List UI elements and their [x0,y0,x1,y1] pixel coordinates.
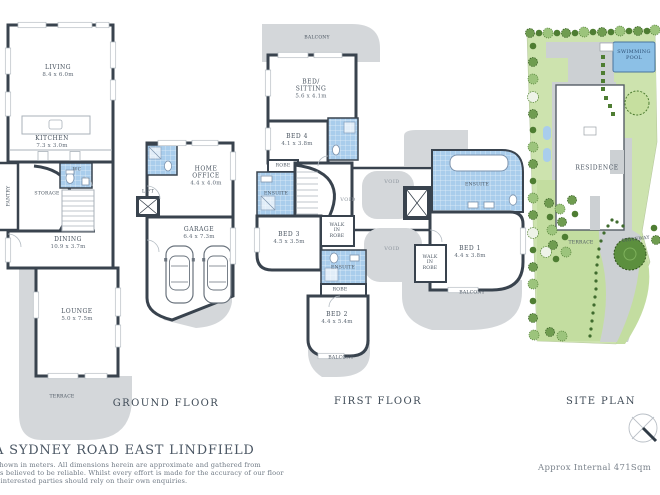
room-label-bed1: BED 1 4.4 x 3.8m [454,245,485,259]
void-label-2: VOID [384,180,400,186]
room-label-bed4: BED 4 4.1 x 3.8m [281,133,312,147]
area-label-residence: RESIDENCE [575,164,618,171]
room-label-walk-in-robe2: WALK IN ROBE [421,255,439,271]
room-label-ensuite3: ENSUITE [264,191,288,196]
room-label-lounge: LOUNGE 5.0 x 7.5m [61,308,92,322]
first-floor-drawing [254,24,525,377]
room-label-lift: LIFT [142,189,154,194]
room-label-bed-sitting: BED/ SITTING 5.6 x 4.1m [294,78,328,99]
floorplan-graphics [0,0,660,495]
property-address: A SYDNEY ROAD EAST LINDFIELD [0,443,255,458]
room-label-kitchen: KITCHEN 7.3 x 3.0m [35,135,69,149]
disclaimer-line-1: shown in meters. All dimensions herein a… [0,461,261,469]
disclaimer-line-2: es believed to be reliable. Whilst every… [0,469,284,477]
compass-icon [629,414,657,442]
room-label-ensuite1: ENSUITE [465,182,489,187]
room-label-ensuite2: ENSUITE [331,265,355,270]
ground-floor-title: GROUND FLOOR [113,398,219,409]
room-label-robe2: ROBE [333,287,348,292]
room-label-storage: STORAGE [34,191,59,196]
disclaimer-line-3: , interested parties should rely on thei… [0,477,187,485]
room-label-terrace-ground: TERRACE [50,394,75,399]
room-label-pantry: PANTRY [6,186,11,207]
room-label-balcony-top: BALCONY [304,35,329,40]
room-label-walk-in-robe1: WALK IN ROBE [328,223,346,239]
area-label-terrace-site: TERRACE [569,240,594,245]
room-label-home-office: HOME OFFICE 4.4 x 4.0m [185,165,227,186]
site-plan-drawing [526,25,660,344]
floorplan-page: LIVING 8.4 x 6.0m KITCHEN 7.3 x 3.0m PAN… [0,0,660,495]
room-label-bed2: BED 2 4.4 x 5.4m [321,311,352,325]
room-label-bed3: BED 3 4.5 x 3.5m [273,231,304,245]
room-label-balcony-bottom: BALCONY [328,355,353,360]
void-label-1: VOID [340,198,356,204]
room-label-robe1: ROBE [276,163,291,168]
room-label-dining: DINING 10.9 x 3.7m [50,236,85,250]
first-floor-title: FIRST FLOOR [334,396,422,407]
room-label-balcony-right: BALCONY [459,290,484,295]
approx-internal-area: Approx Internal 471Sqm [538,463,651,473]
void-label-3: VOID [384,247,400,253]
room-label-living: LIVING 8.4 x 6.0m [42,64,73,78]
site-plan-title: SITE PLAN [566,396,636,407]
area-label-swimming-pool: SWIMMING POOL [616,50,652,62]
room-label-wc: WC [73,167,82,172]
room-label-garage: GARAGE 6.4 x 7.3m [183,226,214,240]
